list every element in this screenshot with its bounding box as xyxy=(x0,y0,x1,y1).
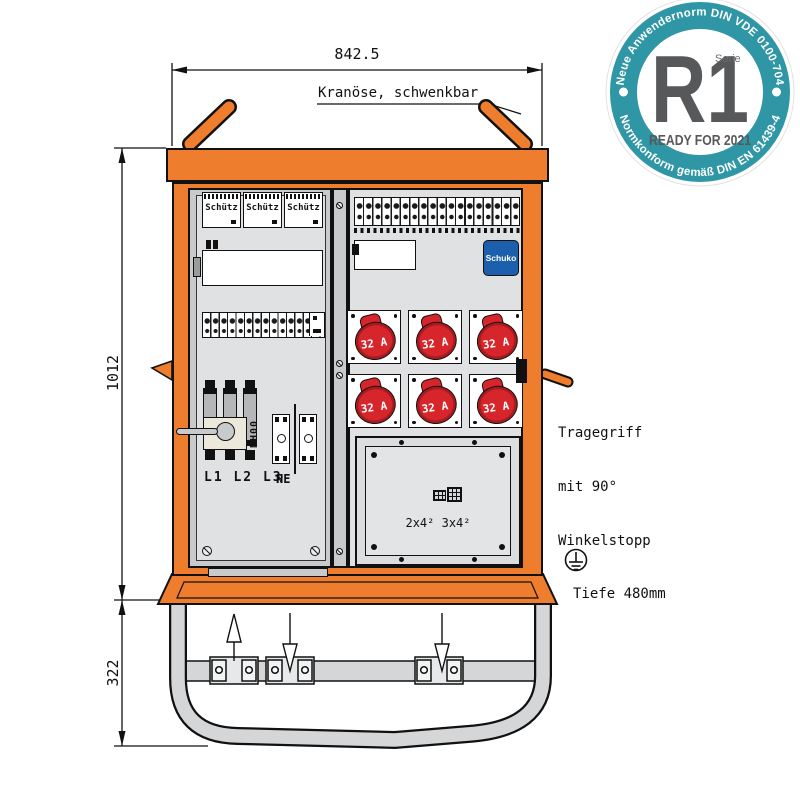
breaker-group-right xyxy=(354,240,416,270)
switch-foot xyxy=(225,450,235,460)
handle-note-line2: mit 90° xyxy=(558,478,651,496)
blank-plate: 2x4² 3x4² xyxy=(355,436,521,566)
vent-hatch-icon xyxy=(204,194,239,199)
badge-series-label: Serie xyxy=(715,53,741,65)
handle-note-line3: Winkelstopp xyxy=(558,532,651,550)
badge-dot-right xyxy=(772,88,781,97)
indicator-square xyxy=(272,220,277,224)
screw-icon xyxy=(499,452,505,458)
screw-icon xyxy=(336,372,343,379)
schuko-badge: Schuko xyxy=(483,240,519,276)
contactor-label: Schütz xyxy=(203,203,240,213)
cee-socket-32a: 32 A xyxy=(469,374,523,428)
dim-arrow-1012-bottom xyxy=(119,585,126,600)
dimension-height: 1012 xyxy=(104,343,122,403)
indicator-square xyxy=(231,220,236,224)
rotary-knob xyxy=(216,422,235,441)
screw-icon xyxy=(371,544,377,550)
cee-socket-32a: 32 A xyxy=(408,374,462,428)
pe-bar xyxy=(294,404,296,474)
r1-badge: Neue Anwendernorm DIN VDE 0100-704 Normk… xyxy=(594,0,800,192)
distribution-cabinet: Schütz Schütz Schütz xyxy=(166,148,549,604)
handle-note: Tragegriff mit 90° Winkelstopp xyxy=(558,388,651,586)
neutral-terminal xyxy=(272,414,290,464)
contactor: Schütz xyxy=(202,192,241,228)
module-row-right xyxy=(354,197,520,226)
depth-note: Tiefe 480mm xyxy=(573,586,666,602)
breaker-row-left xyxy=(202,250,323,286)
crane-eye-left xyxy=(190,107,229,144)
screw-icon xyxy=(472,440,477,445)
technical-drawing-canvas: 842.5 Kranöse, schwenkbar 1012 322 Trage… xyxy=(0,0,800,800)
cee-socket-32a: 32 A xyxy=(347,310,401,364)
screw-icon xyxy=(336,360,343,367)
din-rail-hatch xyxy=(354,228,520,233)
terminal-clamp xyxy=(205,380,215,388)
badge-dot-left xyxy=(619,88,628,97)
screw-icon xyxy=(336,548,343,555)
screw-icon xyxy=(399,557,404,562)
crane-eye-right xyxy=(486,107,525,144)
contactor: Schütz xyxy=(243,192,282,228)
base-frame xyxy=(176,598,543,740)
screw-icon xyxy=(336,202,343,209)
dim-arrow-1012-top xyxy=(119,148,126,163)
rotary-handle-plate xyxy=(203,417,247,450)
phase-label: L1 L2 L3 xyxy=(204,470,283,485)
end-module xyxy=(309,313,324,336)
schuko-label: Schuko xyxy=(486,253,517,263)
screw-icon xyxy=(310,546,320,556)
screw-icon xyxy=(399,440,404,445)
center-divider xyxy=(332,188,348,568)
screw-icon xyxy=(472,557,477,562)
terminal-grid-icon xyxy=(433,490,446,501)
door-latch-right xyxy=(516,359,527,383)
cross-section-label: 2x4² 3x4² xyxy=(357,516,519,530)
contactor-row: Schütz Schütz Schütz xyxy=(202,192,323,228)
dim-arrow-322-top xyxy=(119,600,126,615)
contactor: Schütz xyxy=(284,192,323,228)
badge-ready-text: READY FOR 2021 xyxy=(649,133,751,149)
npe-terminals xyxy=(272,412,318,468)
screw-icon xyxy=(371,452,377,458)
dim-arrow-left xyxy=(172,67,187,74)
vent-hatch-icon xyxy=(245,194,280,199)
screw-icon xyxy=(499,544,505,550)
cabinet-top-bar xyxy=(166,148,549,182)
contactor-label: Schütz xyxy=(244,203,281,213)
cee-socket-32a: 32 A xyxy=(408,310,462,364)
pe-label: PE xyxy=(276,472,290,486)
indicator-square xyxy=(313,220,318,224)
main-switch: NH00 xyxy=(203,380,267,472)
dim-arrow-right xyxy=(527,67,542,74)
cee-socket-32a: 32 A xyxy=(469,310,523,364)
dimension-width: 842.5 xyxy=(300,45,414,63)
module-row-left xyxy=(202,312,325,338)
terminal-grid-icon xyxy=(447,487,462,502)
cee-socket-32a: 32 A xyxy=(347,374,401,428)
switch-foot xyxy=(205,450,215,460)
dimension-base: 322 xyxy=(104,643,122,703)
dim-arrow-322-bottom xyxy=(119,731,126,746)
screw-icon xyxy=(202,546,212,556)
pe-terminal xyxy=(299,414,317,464)
terminal-clamp xyxy=(245,380,255,388)
door-bottom-tray xyxy=(208,568,328,577)
nh00-label: NH00 xyxy=(249,416,263,452)
crane-label: Kranöse, schwenkbar xyxy=(318,85,478,101)
blank-plate-inner xyxy=(365,446,511,556)
handle-note-line1: Tragegriff xyxy=(558,424,651,442)
vent-hatch-icon xyxy=(286,194,321,199)
contactor-label: Schütz xyxy=(285,203,322,213)
terminal-clamp xyxy=(225,380,235,388)
switch-lever xyxy=(176,428,218,435)
